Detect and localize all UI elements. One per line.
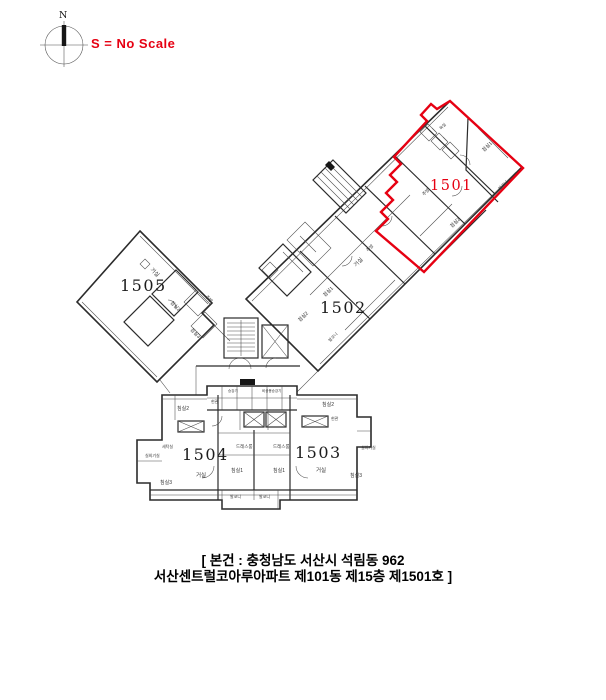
plan-geometry [259, 244, 311, 296]
property-caption: [ 본건 : 충청남도 서산시 석림동 962 서산센트럴코아루아파트 제101… [0, 553, 606, 584]
room-label: 비상용승강기 [262, 388, 281, 393]
core-shaft-fill [240, 379, 255, 385]
plan-geometry [342, 256, 352, 266]
room-label: 욕실 [437, 121, 447, 131]
plan-geometry [317, 164, 362, 209]
plan-geometry [140, 259, 150, 269]
floor-plan-drawing: N [0, 0, 606, 700]
plan-geometry [266, 412, 286, 427]
room-label: 거실 [352, 256, 365, 269]
room-label: 침실1 [321, 285, 335, 299]
plan-geometry [302, 416, 328, 427]
plan-geometry [420, 204, 452, 236]
compass-north-label: N [59, 10, 67, 21]
unit-label-1505: 1505 [120, 276, 167, 295]
plan-geometry [262, 325, 288, 358]
room-label: 침실1 [231, 467, 243, 474]
room-label: 발코니 [230, 493, 241, 499]
plan-geometry [184, 290, 210, 316]
plan-geometry [313, 160, 366, 213]
room-label: 실외기실 [145, 452, 160, 458]
compass: N [40, 10, 88, 67]
wing-outline [246, 101, 522, 371]
room-label: 발코니 [326, 330, 338, 342]
plan-geometry [262, 252, 303, 278]
caption-line-2: 서산센트럴코아루아파트 제101동 제15층 제1501호 ] [0, 569, 606, 585]
plan-geometry [207, 386, 297, 410]
floor-plan-page: S = No Scale N [0, 0, 606, 700]
room-label: 거실 [196, 471, 206, 479]
unit-1505-plan [77, 231, 230, 393]
room-label: 침실2 [296, 310, 310, 324]
caption-line-1: [ 본건 : 충청남도 서산시 석림동 962 [0, 553, 606, 569]
room-label: 침실2 [169, 299, 183, 313]
unit-label-1504: 1504 [182, 445, 229, 464]
compass-needle [62, 25, 66, 46]
room-label: 현관 [211, 398, 219, 404]
room-label: 거실 [316, 466, 326, 474]
room-label: 세탁실 [162, 443, 173, 449]
plan-geometry [227, 320, 255, 356]
room-label: 침실2 [322, 401, 334, 408]
plan-geometry [478, 128, 508, 158]
wing-stairwell [313, 160, 366, 213]
plan-geometry [124, 296, 174, 346]
unit-label-1502: 1502 [320, 298, 367, 317]
unit-label-1503: 1503 [295, 443, 342, 462]
room-label: 침실3 [350, 472, 362, 479]
plan-geometry [178, 421, 204, 432]
room-label: 침실1 [273, 467, 285, 474]
room-label: 주방 [364, 243, 375, 254]
plan-geometry [252, 107, 448, 301]
room-label: 승강기 [228, 388, 238, 393]
room-label: 침실2 [177, 405, 189, 412]
room-label: 실외기실 [361, 444, 376, 450]
room-label: 드레스룸 [273, 443, 290, 450]
room-label: 침실2 [448, 216, 462, 230]
unit-1505-outline [77, 231, 214, 382]
room-label: 드레스룸 [236, 443, 253, 450]
plan-geometry [82, 302, 157, 377]
unit-label-1501: 1501 [430, 178, 473, 194]
plan-geometry [229, 358, 276, 369]
plan-geometry [460, 155, 470, 165]
plan-geometry [244, 412, 264, 427]
room-label: 침실3 [160, 479, 172, 486]
wing-plan [246, 101, 522, 392]
room-label: 현관 [331, 415, 339, 421]
plan-geometry [297, 371, 318, 392]
room-label: 발코니 [259, 493, 270, 499]
